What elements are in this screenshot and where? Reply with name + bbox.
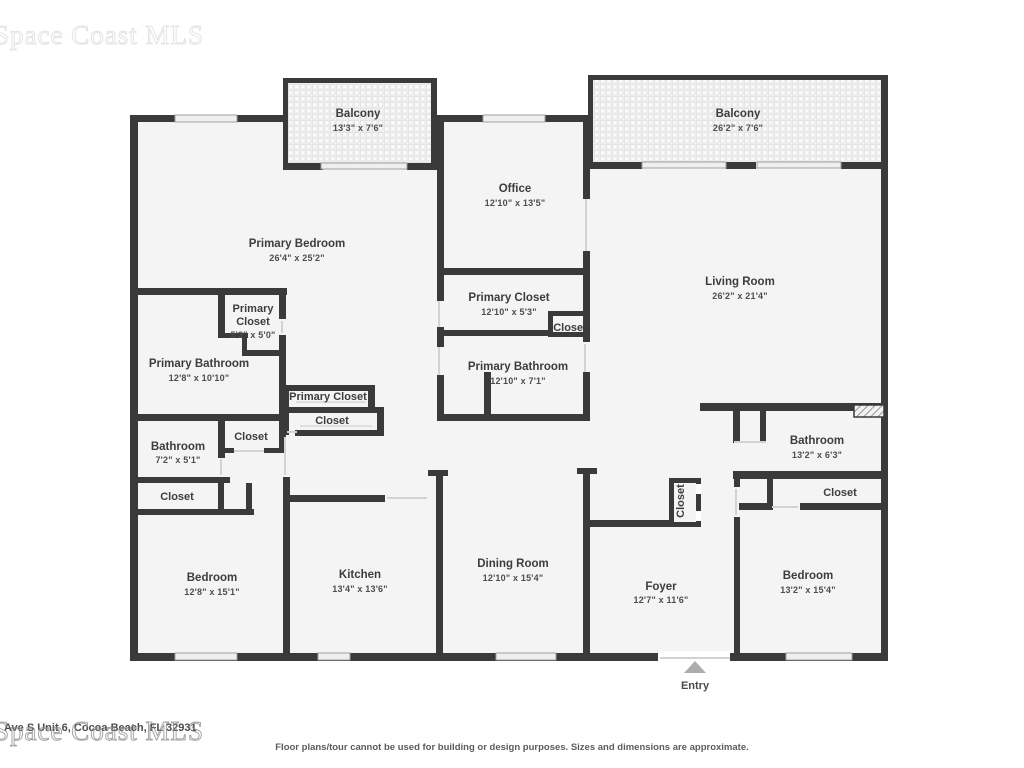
floor-plan-page: Space Coast MLS: [0, 0, 1024, 768]
room-label-closet-bath: Closet: [234, 431, 268, 443]
room-dims-office: 12'10" x 13'5": [485, 198, 546, 208]
room-label-primary-closet-hall: Primary Closet: [289, 391, 367, 403]
bathroom-fixture-hatch: [854, 405, 884, 417]
room-label-living-room: Living Room: [705, 276, 775, 288]
room-label-primary-bedroom: Primary Bedroom: [249, 238, 346, 250]
room-dims-foyer: 12'7" x 11'6": [634, 595, 689, 605]
room-dims-primary-closet-mid: 12'10" x 5'3": [481, 307, 536, 317]
room-label-bedroom-right: Bedroom: [783, 570, 833, 582]
room-label-closet-hall: Closet: [315, 415, 349, 427]
watermark-top: Space Coast MLS: [0, 20, 204, 50]
disclaimer-text: Floor plans/tour cannot be used for buil…: [275, 742, 749, 753]
room-dims-primary-closet-small: 5'3" x 5'0": [230, 330, 275, 340]
room-dims-primary-bathroom-left: 12'8" x 10'10": [169, 373, 230, 383]
entry-arrow-icon: [684, 661, 706, 673]
room-label-kitchen: Kitchen: [339, 569, 381, 581]
room-label-office: Office: [499, 183, 532, 195]
room-label-foyer: Foyer: [645, 581, 677, 593]
room-dims-balcony-left: 13'3" x 7'6": [333, 123, 383, 133]
room-label-primary-bathroom-left: Primary Bathroom: [149, 358, 249, 370]
room-label-closet-foyer: Closet: [675, 484, 687, 518]
room-label-closet-right: Closet: [823, 487, 857, 499]
floor-plan: Space Coast MLS: [0, 0, 1024, 768]
room-dims-bathroom-right: 13'2" x 6'3": [792, 450, 842, 460]
room-label-primary-closet-small-2: Closet: [236, 316, 270, 328]
watermark-bottom: Space Coast MLS: [0, 716, 204, 746]
room-label-primary-closet-small-1: Primary: [233, 303, 275, 315]
room-label-bedroom-left: Bedroom: [187, 572, 237, 584]
room-label-closet-bedroom-left: Closet: [160, 491, 194, 503]
room-label-bathroom-right: Bathroom: [790, 435, 844, 447]
entry-label: Entry: [681, 680, 710, 692]
room-label-balcony-right: Balcony: [716, 108, 761, 120]
room-label-bathroom-left: Bathroom: [151, 441, 205, 453]
room-dims-bedroom-right: 13'2" x 15'4": [780, 585, 835, 595]
room-dims-balcony-right: 26'2" x 7'6": [713, 123, 763, 133]
room-label-balcony-left: Balcony: [336, 108, 381, 120]
room-label-primary-bathroom-mid: Primary Bathroom: [468, 361, 568, 373]
room-dims-primary-bathroom-mid: 12'10" x 7'1": [490, 376, 545, 386]
room-label-dining-room: Dining Room: [477, 558, 549, 570]
room-dims-bathroom-left: 7'2" x 5'1": [155, 455, 200, 465]
room-dims-kitchen: 13'4" x 13'6": [332, 584, 387, 594]
room-dims-primary-bedroom: 26'4" x 25'2": [269, 253, 324, 263]
room-dims-bedroom-left: 12'8" x 15'1": [184, 587, 239, 597]
room-dims-living-room: 26'2" x 21'4": [712, 291, 767, 301]
room-label-primary-closet-mid: Primary Closet: [468, 292, 549, 304]
room-dims-dining-room: 12'10" x 15'4": [483, 573, 544, 583]
room-label-closet-mid: Closet: [553, 322, 587, 334]
balcony-right-area: [593, 80, 881, 162]
